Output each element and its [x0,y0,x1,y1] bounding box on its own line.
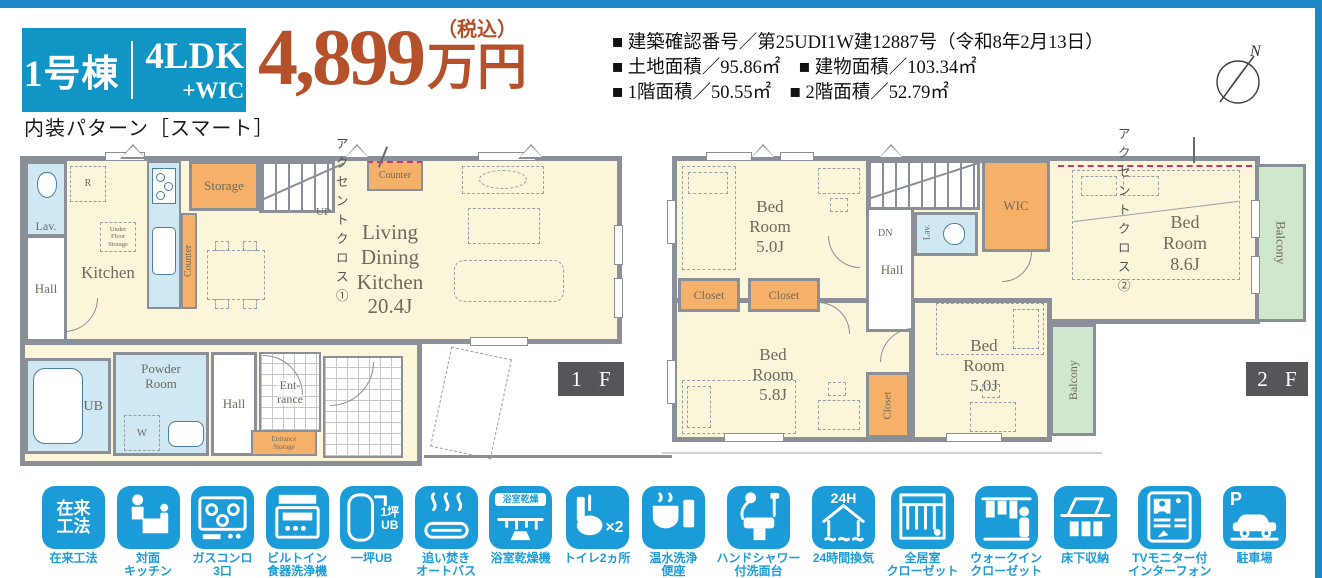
detail-line-3: ■ 1階面積／50.55㎡ ■ 2階面積／52.79㎡ [612,83,949,103]
ventilation-24h-icon: 24H [812,486,875,549]
powder-label: Powder Room [116,361,206,392]
window-marker [614,225,623,265]
feature-gas-stove: ガスコンロ 3口 [191,486,254,578]
closet-1: Closet [678,278,740,312]
washer-space: W [124,415,160,451]
icon-text: ×2 [605,520,623,537]
window-marker [724,433,784,442]
leader-line [1193,137,1195,163]
feature-label: 駐車場 [1236,552,1272,565]
feature-label: 追い焚き オートバス [416,552,476,578]
feature-bathroom-dryer: 浴室乾燥 浴室乾燥機 [489,486,552,578]
closet-label: Closet [882,391,895,419]
bathroom-dryer-icon: 浴室乾燥 [489,486,552,549]
chair [982,384,1000,398]
window-marker [1251,256,1260,294]
balcony-label: Balcony [1273,221,1288,264]
bedroom1-label: Bed Room 5.0J [725,197,815,257]
room-storage-1f: Storage [189,161,259,211]
room-lav-2f: Lav. [914,212,978,256]
tv-intercom-icon [1138,486,1201,549]
two-toilets-icon: ×2 [566,486,629,549]
stove [152,168,176,204]
chair [828,382,846,396]
pillow [688,172,728,194]
icon-text: 在来 工法 [42,486,105,549]
room-kitchen: R Under Floor Storage Kitchen [67,161,149,307]
closet-2: Closet [748,278,820,312]
vent-marker [878,144,904,159]
balcony-bottom: Balcony [1050,324,1096,436]
closet-label: Closet [694,288,725,302]
price-unit: 万円 [427,42,527,92]
feature-label: 24時間換気 [813,552,874,565]
room-hall-1f-upper: Hall [25,235,67,342]
gas-stove-icon [191,486,254,549]
storage-label: Storage [204,178,244,193]
unit-number: 1号棟 [24,43,120,97]
kitchen-counter-unit [147,161,181,309]
detail-line-1: ■ 建築確認番号／第25UDI1W建12887号（令和8年2月13日） [612,33,1104,53]
room-label: Hall [35,281,57,296]
balcony-right: Balcony [1256,164,1306,322]
hall-label: Hall [223,396,245,411]
w-mark: W [137,427,147,440]
feature-icons-row: 在来 工法 在来工法 対面 キッチン ガスコンロ 3口 ビルトイン 食器洗浄機 [42,486,1286,578]
feature-label: ビルトイン 食器洗浄機 [267,552,327,578]
chair [243,241,257,251]
feature-24h-ventilation: 24H 24時間換気 [812,486,875,578]
feature-label: 温水洗浄 便座 [649,552,697,578]
chair [830,198,848,212]
chair [215,241,229,251]
toilet-fixture [943,223,965,245]
pillow [1081,176,1117,196]
tax-included-note: （税込） [437,20,517,40]
property-details: ■ 建築確認番号／第25UDI1W建12887号（令和8年2月13日） ■ 土地… [612,31,1104,106]
closet-3: Closet [866,372,910,438]
wic-label: WIC [1003,198,1028,213]
room-wic: WIC [982,160,1050,252]
pillow [687,386,711,428]
vent-marker [518,144,544,159]
feature-counter-kitchen: 対面 キッチン [117,486,180,578]
dining-table [207,250,265,300]
sink [168,421,204,447]
dishwasher-icon [266,486,329,549]
desk [818,400,860,430]
feature-label: ガスコンロ 3口 [193,552,253,578]
chair [215,299,229,309]
room-lav-1f: Lav. [25,161,67,237]
ub-label: UB [84,399,103,416]
icon-text: 1坪 UB [380,506,399,531]
window-marker [706,152,752,161]
feature-label: ハンドシャワー 付洗面台 [716,552,800,578]
window-marker [780,152,814,161]
auto-bath-icon [415,486,478,549]
bed [682,166,736,270]
ground-line [662,452,1102,454]
price-amount: 4,899 [258,20,423,96]
kitchen-label: Kitchen [69,263,147,283]
tv-board [462,166,544,194]
vent-marker [120,144,146,159]
sofa [454,260,564,302]
parking-icon: P [1223,486,1286,549]
compass-n-label: N [1249,43,1262,60]
feature-label: 床下収納 [1061,552,1109,565]
parking-space [430,347,512,460]
compass-icon: N [1206,40,1276,112]
right-accent-bar [1315,0,1322,578]
entrance-storage-label: Entrance Storage [272,435,297,452]
under-floor-label: Under Floor Storage [108,226,128,249]
interior-pattern-label: 内装パターン［スマート］ [24,112,274,141]
hall-label: Hall [872,262,912,277]
feature-label: ウォークイン クローゼット [970,552,1042,578]
closet-label: Closet [769,288,800,302]
feature-zairai-kouhou: 在来 工法 在来工法 [42,486,105,578]
vent-marker [750,144,776,159]
window-marker [614,278,623,318]
underfloor-storage-icon [1054,486,1117,549]
feature-dishwasher: ビルトイン 食器洗浄機 [266,486,329,578]
living-table [468,208,540,244]
sink [152,227,176,275]
feature-label: 浴室乾燥機 [491,552,551,565]
feature-one-tsubo-ub: 1坪 UB 一坪UB [340,486,403,578]
all-rooms-closet-icon [891,486,954,549]
washlet-icon [642,486,705,549]
unit-badge: 1号棟 4LDK +WIC [22,28,246,112]
floor2-badge: 2 F [1246,362,1308,396]
floor1-badge: 1 F [558,362,624,396]
ground-line [424,455,672,458]
window-marker [1251,200,1260,238]
feature-label: TVモニター付 インターフォン [1128,552,1211,578]
feature-hand-shower-vanity: ハンドシャワー 付洗面台 [716,486,800,578]
feature-label: 対面 キッチン [124,552,172,578]
feature-all-rooms-closet: 全居室 クローゼット [887,486,959,578]
window-marker [667,360,676,404]
room-ub: UB [25,358,111,454]
bed [936,303,1044,355]
counter-side: Counter [181,213,197,309]
counter-label: Counter [379,170,411,182]
feature-label: 在来工法 [49,552,97,565]
bed [682,380,796,434]
bed [1072,170,1240,280]
feature-label: 一坪UB [351,552,392,565]
counter-kitchen-icon [117,486,180,549]
tv [479,170,527,189]
layout-extra-label: +WIC [182,79,244,102]
feature-tv-intercom: TVモニター付 インターフォン [1128,486,1211,578]
feature-underfloor-storage: 床下収納 [1054,486,1117,578]
r-mark: R [85,178,92,190]
entrance-storage: Entrance Storage [251,430,317,456]
room-powder: Powder Room W [113,352,209,456]
window-marker [667,200,676,244]
dn-label: DN [878,228,892,240]
walk-in-closet-icon [975,486,1038,549]
counter-accent-wall: Counter [367,161,423,191]
under-floor-storage: Under Floor Storage [100,222,136,252]
stairs-diagonal [263,162,344,200]
desk [818,168,860,194]
counter-label: Counter [183,245,195,277]
stairs-diagonal [870,160,985,199]
hand-shower-vanity-icon [727,486,790,549]
feature-washlet: 温水洗浄 便座 [642,486,705,578]
accent-cloth-2-label: アクセントクロス② [1118,123,1132,294]
vent-marker [344,144,370,159]
layout-label: 4LDK [145,38,244,75]
feature-label: 全居室 クローゼット [887,552,959,578]
feature-label: トイレ2ヵ所 [564,552,631,565]
pillow [1013,309,1039,349]
refrigerator-space: R [70,166,106,202]
real-estate-flyer: 1号棟 4LDK +WIC 内装パターン［スマート］ 4,899 （税込） 万円… [0,0,1322,578]
chair [243,299,257,309]
feature-parking: P 駐車場 [1223,486,1286,578]
accent-wall-2f [1058,165,1252,167]
detail-line-2: ■ 土地面積／95.86㎡ ■ 建物面積／103.34㎡ [612,58,977,78]
room-label: Lav. [36,219,57,233]
feature-walk-in-closet: ウォークイン クローゼット [970,486,1042,578]
ldk-label: Living Dining Kitchen 20.4J [325,220,455,319]
feature-two-toilets: ×2 トイレ2ヵ所 [564,486,631,578]
zairai-kouhou-icon: 在来 工法 [42,486,105,549]
up-label: UP [316,206,330,219]
balcony-label: Balcony [1066,360,1080,400]
lav-label: Lav. [922,224,933,240]
badge-divider [131,41,133,99]
window-marker [946,433,1002,442]
toilet-fixture [37,172,57,198]
price-block: 4,899 （税込） 万円 [258,20,527,96]
stairs-down [866,160,980,210]
window-marker [470,337,528,346]
feature-auto-bath: 追い焚き オートバス [415,486,478,578]
bed-fold-line [1074,201,1239,222]
bath-ub-icon: 1坪 UB [340,486,403,549]
desk [970,402,1016,432]
top-accent-bar [0,0,1322,8]
bathtub [33,368,83,444]
